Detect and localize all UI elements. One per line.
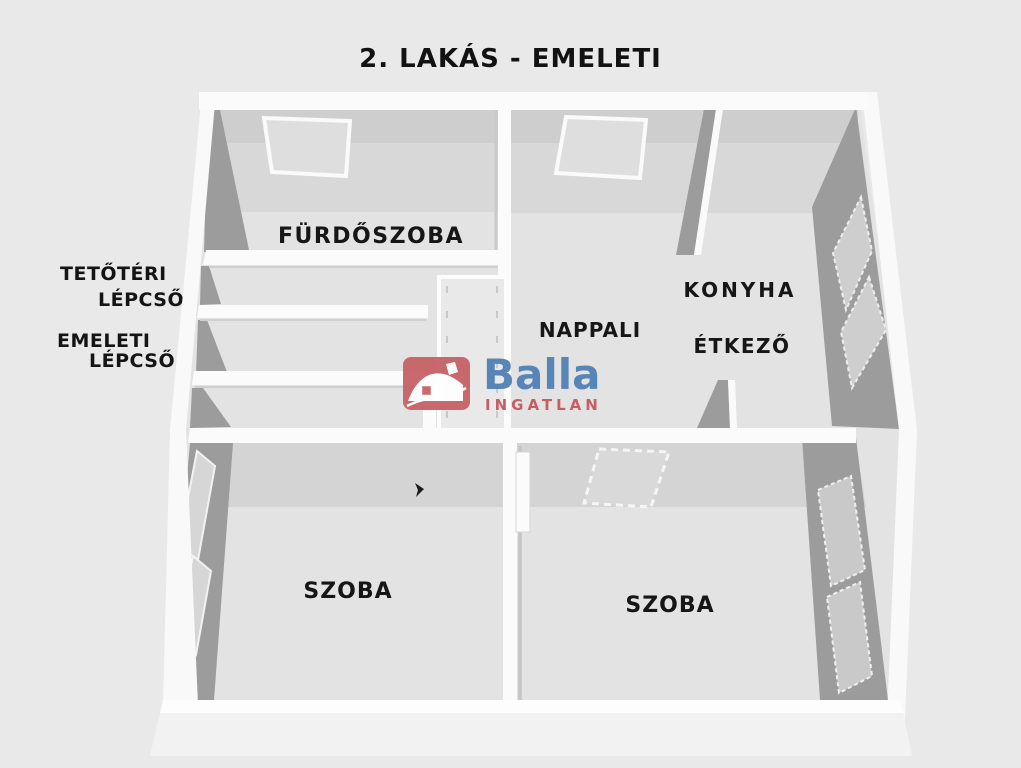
room-label-bathroom: FÜRDŐSZOBA [278,223,464,249]
skylight-window-living [556,117,646,178]
room-label-room-right: SZOBA [625,593,714,618]
divider-rooms [503,443,517,702]
watermark-text: Balla INGATLAN [483,357,602,414]
outer-wall-bottom-top-edge [160,700,903,713]
room-label-room-left: SZOBA [303,579,392,604]
outer-wall-bottom-face [150,713,912,756]
watermark-brand: Balla [483,357,602,394]
house-icon [403,357,470,410]
floor-plan-image: 2. LAKÁS - EMELETI TETŐTÉRI LÉPCSŐ EMELE… [0,0,1021,768]
balla-ingatlan-watermark: Balla INGATLAN [403,357,602,414]
room-label-kitchen: KONYHA [683,278,796,302]
room-label-dining: ÉTKEZŐ [694,334,791,358]
hall-wall-2 [192,371,428,385]
hall-wall-1 [197,305,428,318]
middle-wall [188,428,856,443]
door-leaf [516,452,530,532]
watermark-tagline: INGATLAN [485,396,602,414]
wall-below-bathroom [203,250,511,265]
room-label-living: NAPPALI [539,318,641,342]
outer-wall-top [199,92,868,110]
skylight-window-bathroom [264,118,350,176]
